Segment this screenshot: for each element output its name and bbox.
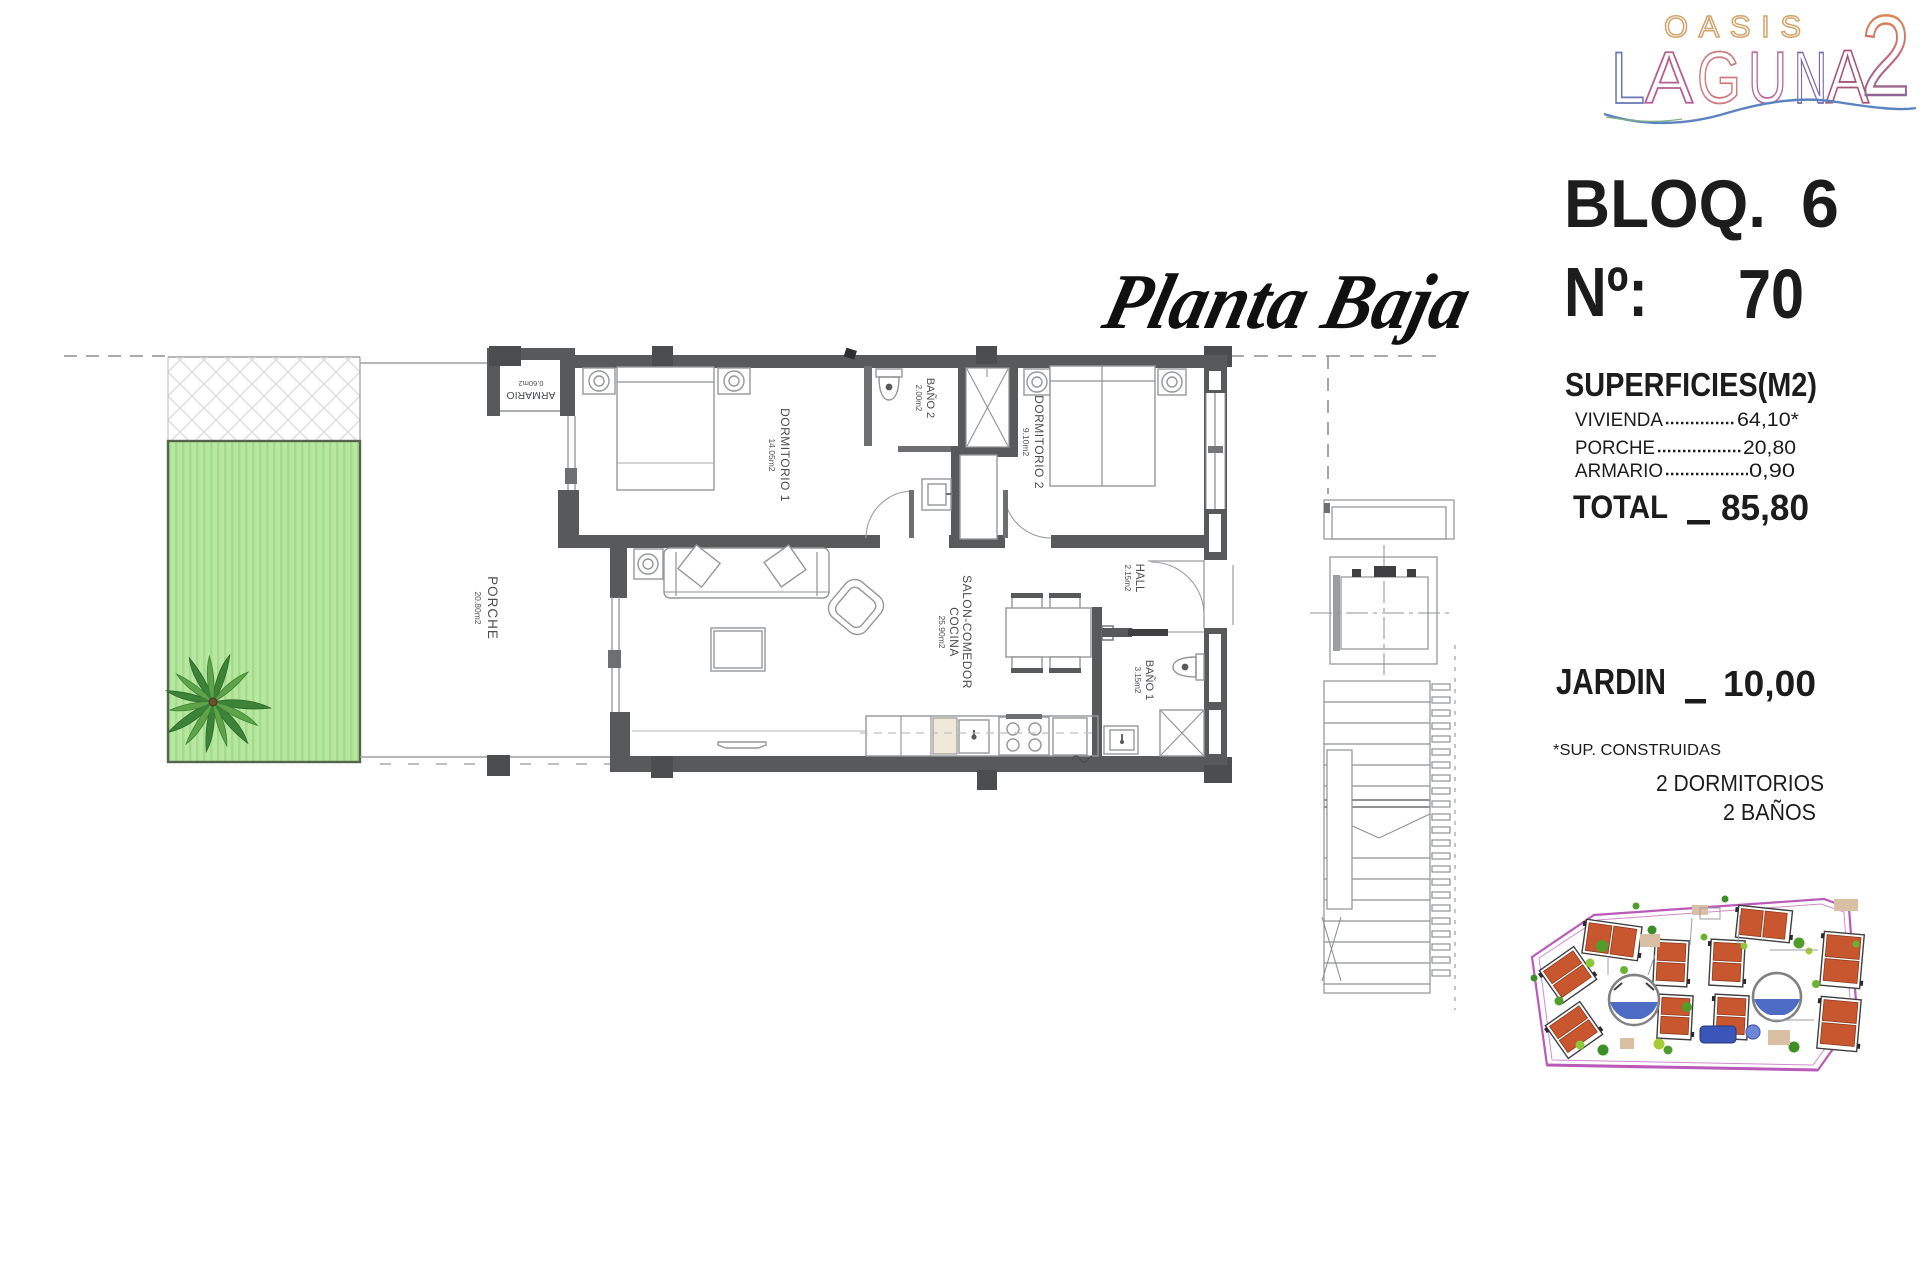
- svg-text:COCINA: COCINA: [947, 607, 961, 657]
- svg-text:0.60m2: 0.60m2: [518, 379, 543, 388]
- svg-text:PORCHE: PORCHE: [485, 576, 500, 640]
- svg-text:64,10*: 64,10*: [1737, 410, 1800, 431]
- svg-text:DORMITORIO 1: DORMITORIO 1: [778, 408, 792, 502]
- svg-text:G: G: [1697, 38, 1741, 119]
- svg-text:25.90m2: 25.90m2: [937, 615, 947, 648]
- svg-text:2 BAÑOS: 2 BAÑOS: [1723, 799, 1816, 825]
- svg-text:A: A: [1645, 38, 1693, 119]
- svg-text:9.10m2: 9.10m2: [1021, 428, 1031, 457]
- svg-text:ARMARIO: ARMARIO: [506, 389, 555, 401]
- svg-text:2.00m2: 2.00m2: [914, 385, 923, 412]
- svg-text:2 DORMITORIOS: 2 DORMITORIOS: [1656, 770, 1824, 796]
- svg-text:SALON-COMEDOR: SALON-COMEDOR: [960, 575, 974, 689]
- svg-text:0,90: 0,90: [1749, 461, 1795, 482]
- svg-text:ARMARIO: ARMARIO: [1575, 461, 1663, 482]
- svg-text:N: N: [1794, 38, 1827, 119]
- svg-text:SUPERFICIES(M2): SUPERFICIES(M2): [1565, 366, 1817, 403]
- svg-text:BAÑO 2: BAÑO 2: [924, 378, 937, 418]
- svg-text:*SUP. CONSTRUIDAS: *SUP. CONSTRUIDAS: [1553, 742, 1721, 759]
- svg-text:VIVIENDA: VIVIENDA: [1575, 410, 1663, 431]
- svg-text:2.15m2: 2.15m2: [1123, 565, 1132, 592]
- svg-text:14.05m2: 14.05m2: [767, 438, 777, 471]
- svg-text:PORCHE: PORCHE: [1575, 438, 1655, 459]
- svg-text:20,80: 20,80: [1743, 438, 1796, 459]
- svg-text:10,00: 10,00: [1723, 663, 1816, 704]
- svg-text:HALL: HALL: [1133, 564, 1145, 593]
- svg-text:Nº:: Nº:: [1564, 253, 1648, 331]
- svg-text:JARDIN: JARDIN: [1556, 661, 1666, 702]
- svg-text:BAÑO 1: BAÑO 1: [1143, 660, 1156, 700]
- svg-text:85,80: 85,80: [1721, 487, 1809, 528]
- svg-text:Planta Baja: Planta Baja: [1095, 259, 1480, 346]
- svg-text:DORMITORIO 2: DORMITORIO 2: [1032, 395, 1046, 489]
- svg-text:L: L: [1611, 38, 1645, 119]
- svg-text:70: 70: [1738, 255, 1804, 333]
- svg-text:TOTAL: TOTAL: [1573, 489, 1668, 525]
- svg-text:3.15m2: 3.15m2: [1133, 667, 1142, 694]
- svg-text:20.80m2: 20.80m2: [473, 591, 483, 624]
- svg-text:6: 6: [1801, 166, 1839, 242]
- svg-text:BLOQ.: BLOQ.: [1564, 166, 1766, 242]
- svg-text:2: 2: [1861, 0, 1910, 120]
